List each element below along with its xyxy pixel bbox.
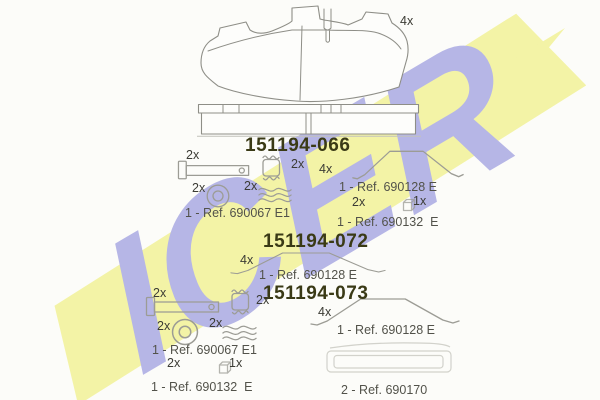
clip-icon — [228, 286, 254, 318]
part-number-066: 151194-066 — [245, 135, 350, 157]
bolt-qty-066: 2x — [352, 195, 365, 209]
box-ref-073: 1 - Ref. 690132 E — [151, 380, 252, 394]
box-ref-066: 1 - Ref. 690132 E — [337, 215, 438, 229]
clip-qty-073: 2x — [256, 293, 269, 307]
box-qty-066: 1x — [413, 194, 426, 208]
clip-qty-066: 2x — [291, 157, 304, 171]
pad-quantity-label: 4x — [400, 14, 413, 28]
wire-ref-072: 1 - Ref. 690128 E — [259, 268, 357, 282]
pin-qty-066: 2x — [186, 148, 199, 162]
brake-pad-front-view — [197, 2, 419, 106]
plate-icon — [325, 341, 455, 375]
wire-ref-066: 1 - Ref. 690128 E — [339, 180, 437, 194]
wire-spring-icon — [352, 146, 464, 182]
kit-ref-066: 1 - Ref. 690067 E1 — [185, 206, 290, 220]
plate-ref-073: 2 - Ref. 690170 — [341, 383, 427, 397]
kit-ref-073: 1 - Ref. 690067 E1 — [152, 343, 257, 357]
clip-icon — [259, 153, 285, 183]
pin-qty-073: 2x — [153, 286, 166, 300]
bolt-qty-073: 2x — [167, 356, 180, 370]
pin-icon — [177, 159, 253, 181]
wire-qty-072: 4x — [240, 253, 253, 267]
part-number-072: 151194-072 — [263, 231, 368, 253]
box-qty-073: 1x — [229, 356, 242, 370]
wire-qty-073: 4x — [318, 305, 331, 319]
catalog-page: ICER 4x 151194-066 2x 2x 2x — [0, 0, 600, 400]
wavy-spring-icon — [221, 323, 258, 343]
wire-ref-073: 1 - Ref. 690128 E — [337, 323, 435, 337]
washer-qty-066: 2x — [192, 181, 205, 195]
wavy-spring-icon — [257, 185, 293, 205]
brake-pad-side-view — [197, 103, 421, 137]
part-number-073: 151194-073 — [263, 283, 368, 305]
spring-qty-066: 2x — [244, 179, 257, 193]
spring-qty-073: 2x — [209, 316, 222, 330]
washer-qty-073: 2x — [157, 319, 170, 333]
wire-qty-066: 4x — [319, 162, 332, 176]
